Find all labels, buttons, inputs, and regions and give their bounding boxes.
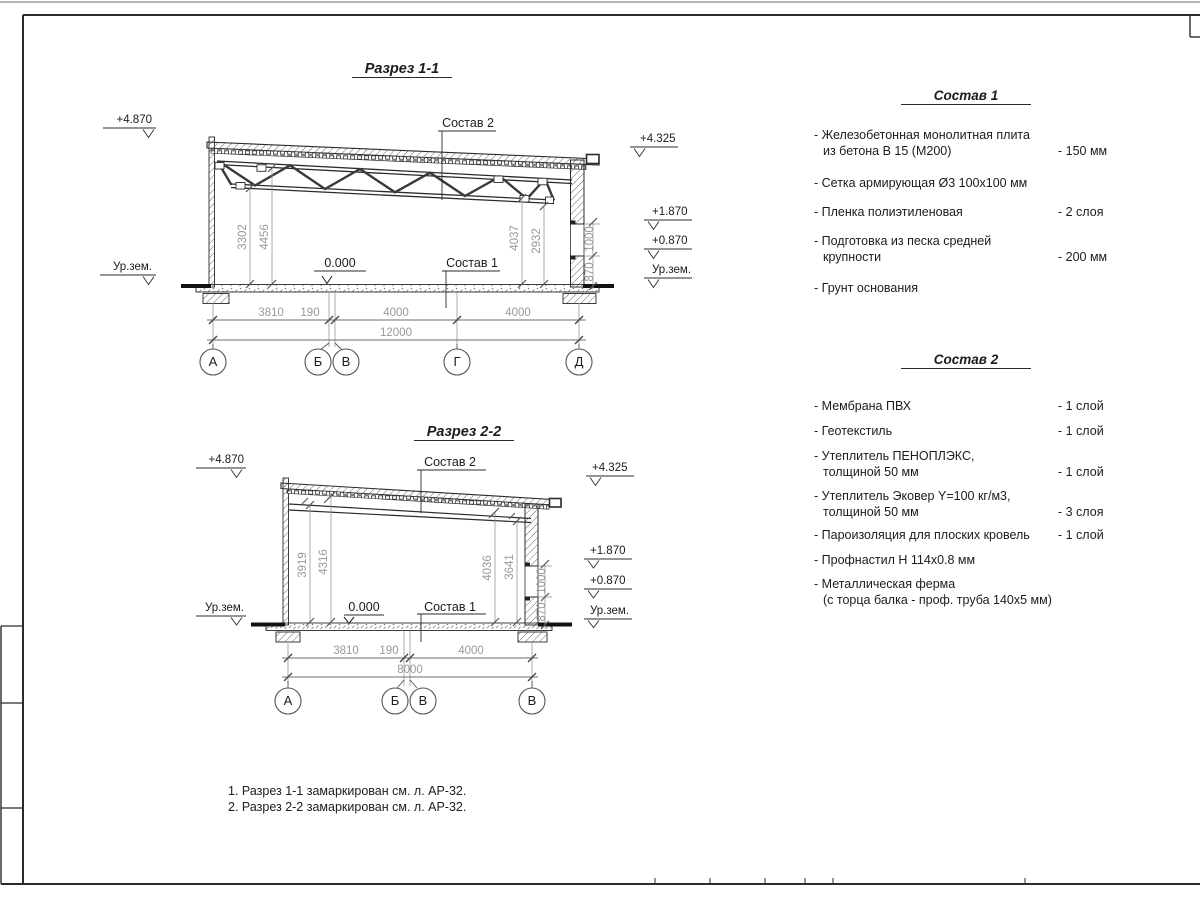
composition-item: - Металлическая ферма (с торца балка - п… (814, 577, 1071, 608)
axis-label: В (410, 688, 436, 714)
composition-qty: - 1 слой (1058, 528, 1104, 542)
vertical-dim-label: 4456 (258, 202, 272, 272)
horizontal-dim-label: 190 (369, 644, 409, 658)
composition-qty: - 1 слой (1058, 465, 1104, 479)
composition-item: - Геотекстиль (814, 424, 1071, 440)
horizontal-dim-label: 4000 (366, 306, 426, 320)
axis-label: В (519, 688, 545, 714)
axis-label: Б (305, 349, 331, 375)
composition-qty: - 1 слой (1058, 399, 1104, 413)
vertical-dim-label: 3919 (296, 530, 310, 600)
composition-item: - Пароизоляция для плоских кровель (814, 528, 1071, 544)
horizontal-dim-label: 4000 (488, 306, 548, 320)
roof-composition-callout: Состав 2 (439, 116, 497, 130)
section-2-2-drawing (196, 468, 634, 714)
elevation-label: +4.870 (100, 113, 152, 127)
ground-level-label: Ур.зем. (590, 604, 629, 618)
composition-2-title: Состав 2 (901, 353, 1031, 369)
axis-label: Д (566, 349, 592, 375)
composition-item: - Профнастил Н 114х0.8 мм (814, 553, 1071, 569)
composition-item: - Мембрана ПВХ (814, 399, 1071, 415)
vertical-dim-label: 3641 (503, 532, 517, 602)
drawing-sheet: Разрез 1-1 +4.870 Ур.зем. +4.325 +1.870 … (0, 0, 1200, 900)
vertical-dim-label: 4316 (317, 527, 331, 597)
wall-dim-label: 1000 (583, 204, 597, 274)
vertical-dim-label: 4037 (508, 203, 522, 273)
axis-label: Б (382, 688, 408, 714)
composition-1-title: Состав 1 (901, 89, 1031, 105)
composition-qty: - 3 слоя (1058, 505, 1103, 519)
composition-item: - Подготовка из песка средней крупности (814, 234, 1071, 265)
axis-label: В (333, 349, 359, 375)
horizontal-dim-label: 3810 (316, 644, 376, 658)
composition-item: - Пленка полиэтиленовая (814, 205, 1071, 221)
composition-item: - Утеплитель ПЕНОПЛЭКС, толщиной 50 мм (814, 449, 1071, 480)
composition-qty: - 1 слой (1058, 424, 1104, 438)
section-2-title: Разрез 2-2 (414, 425, 514, 441)
section-1-title: Разрез 1-1 (352, 62, 452, 78)
elevation-label: +0.870 (590, 574, 626, 588)
note-line: 2. Разрез 2-2 замаркирован см. л. АР-32. (228, 799, 466, 815)
floor-composition-callout: Состав 1 (419, 600, 481, 614)
composition-qty: - 150 мм (1058, 144, 1107, 158)
floor-composition-callout: Состав 1 (443, 256, 501, 270)
wall-dim-label: 1000 (535, 546, 549, 616)
composition-qty: - 200 мм (1058, 250, 1107, 264)
axis-label: А (200, 349, 226, 375)
note-line: 1. Разрез 1-1 замаркирован см. л. АР-32. (228, 783, 466, 799)
composition-item: - Утеплитель Эковер Y=100 кг/м3, толщино… (814, 489, 1071, 520)
elevation-label: +0.870 (652, 234, 688, 248)
elevation-label: +4.325 (592, 461, 628, 475)
composition-qty: - 2 слоя (1058, 205, 1103, 219)
zero-level-label: 0.000 (342, 600, 386, 614)
total-dim-label: 12000 (361, 326, 431, 340)
composition-item: - Железобетонная монолитная плита из бет… (814, 128, 1071, 159)
composition-item: - Сетка армирующая Ø3 100х100 мм (814, 176, 1071, 192)
elevation-label: +4.870 (192, 453, 244, 467)
vertical-dim-label: 4036 (481, 533, 495, 603)
total-dim-label: 8000 (375, 663, 445, 677)
horizontal-dim-label: 4000 (441, 644, 501, 658)
ground-level-label: Ур.зем. (192, 601, 244, 615)
elevation-label: +1.870 (590, 544, 626, 558)
vertical-dim-label: 2932 (530, 206, 544, 276)
horizontal-dim-label: 190 (290, 306, 330, 320)
elevation-label: +1.870 (652, 205, 688, 219)
composition-item: - Грунт основания (814, 281, 1071, 297)
ground-level-label: Ур.зем. (100, 260, 152, 274)
zero-level-label: 0.000 (316, 256, 364, 270)
vertical-dim-label: 3302 (236, 202, 250, 272)
axis-label: Г (444, 349, 470, 375)
roof-composition-callout: Состав 2 (419, 455, 481, 469)
ground-level-label: Ур.зем. (652, 263, 691, 277)
axis-label: А (275, 688, 301, 714)
elevation-label: +4.325 (640, 132, 676, 146)
